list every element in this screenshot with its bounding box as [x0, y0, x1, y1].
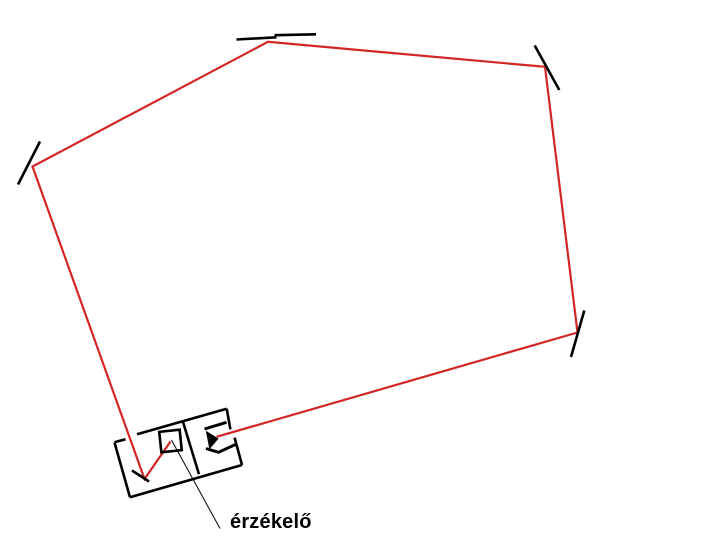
laser-path-canvas [0, 0, 727, 558]
laser-beam-path [33, 42, 578, 479]
detector-arrow [206, 431, 219, 449]
diagram-stage: érzékelő [0, 0, 727, 558]
left-box-top-edge-a [115, 439, 126, 442]
mirror-top-segment-a [237, 37, 277, 39]
detector-top-bar [205, 422, 227, 429]
left-box-left-edge [115, 443, 131, 498]
mirror-top-segment-b [275, 34, 317, 35]
sensor-label: érzékelő [230, 511, 312, 533]
sensor-square [159, 430, 182, 453]
box-top-edge [137, 409, 227, 435]
right-box-right-edge-a [227, 409, 231, 430]
right-box-right-edge-b [235, 438, 242, 465]
box-divider-edge [183, 421, 199, 474]
